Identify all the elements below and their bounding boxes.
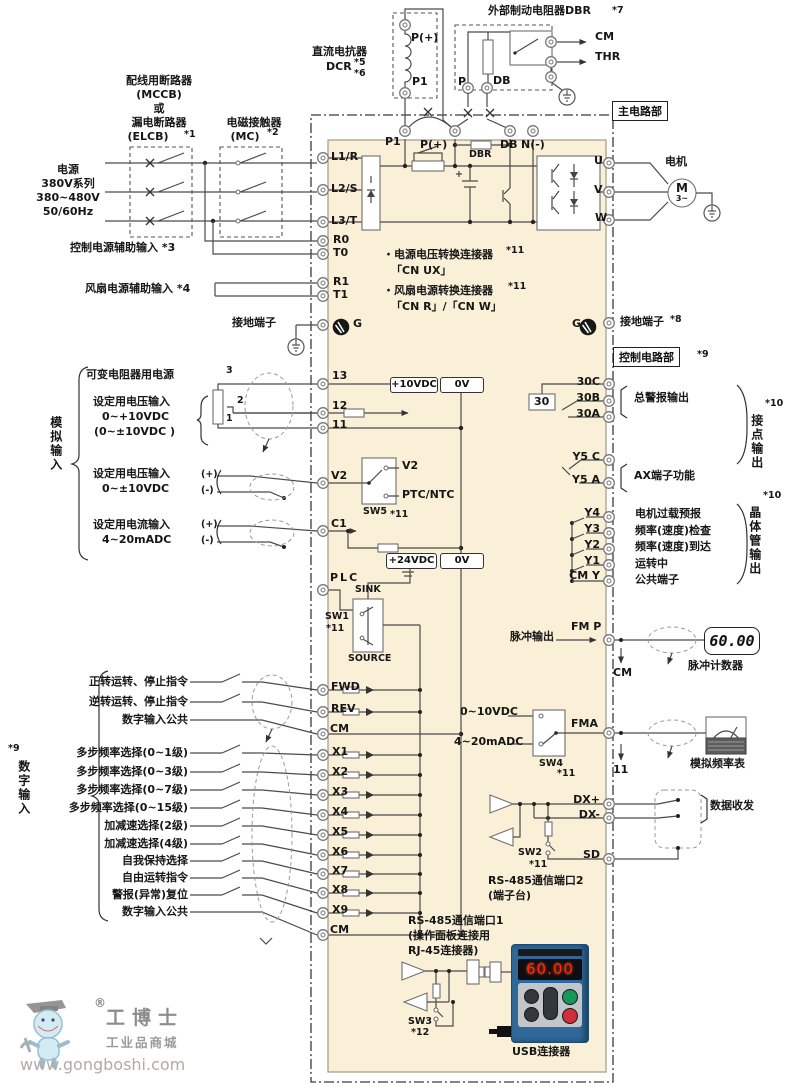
supply-0v-a: 0V (440, 377, 484, 393)
term-x7: X7 (332, 865, 348, 878)
ground-left-label: 接地端子 (232, 317, 276, 330)
v2-minus: (-) (201, 486, 214, 497)
power-source-line3: 380~480V (25, 192, 111, 205)
keypad-buttons (518, 983, 582, 1027)
fn-label-5: 公共端子 (635, 574, 679, 587)
analog-group-label: 模拟输入 (48, 416, 62, 472)
term-fma: FMA (571, 718, 598, 731)
contact-output-group: 接点输出 (749, 414, 763, 470)
term-x6: X6 (332, 846, 348, 859)
v2-plus: (+) (201, 470, 218, 481)
sw5-label: SW5 (363, 507, 387, 518)
digital-label-x7: 自我保持选择 (23, 855, 188, 868)
logo-name: 工博士 (106, 1008, 184, 1030)
supply-24vdc: +24VDC (386, 553, 437, 569)
keypad-stop-button (562, 1008, 578, 1024)
term-sd: SD (572, 849, 600, 862)
term-x3: X3 (332, 786, 348, 799)
rs485-1-label-2: (操作面板连接用 (408, 930, 490, 943)
analog-row4a: 4~20mADC (102, 534, 171, 547)
keypad-prg-button (524, 989, 539, 1004)
voltage-input-brace (197, 396, 208, 445)
aux-fan-label: 风扇电源辅助输入 *4 (85, 283, 190, 296)
aux-control-label: 控制电源辅助输入 *3 (70, 242, 175, 255)
dbr-p: P (458, 76, 466, 89)
term-30c: 30C (570, 376, 600, 389)
analog-row2a: 0~+10VDC (102, 411, 169, 424)
term-r1: R1 (333, 276, 349, 289)
supply-0v-b: 0V (440, 553, 484, 569)
term-rev: REV (331, 703, 356, 716)
c1-plus: (+) (201, 520, 218, 531)
analog-row4: 设定用电流输入 (93, 519, 170, 532)
fn-label-3: 频率(速度)到达 (635, 541, 711, 554)
term-y5c: Y5 C (568, 451, 600, 464)
fn-label-4: 运转中 (635, 558, 668, 571)
analog-group-brace (72, 367, 88, 560)
term-l2s: L2/S (331, 183, 358, 196)
term-y3: Y3 (572, 523, 600, 536)
term-11: 11 (332, 419, 347, 432)
conn-note-2: 「CN UX」 (391, 265, 452, 278)
digital-input-wiring (190, 674, 317, 944)
fma-in1: 0~10VDC (460, 706, 518, 719)
term-x9: X9 (332, 904, 348, 917)
ground-right-note: *8 (670, 315, 682, 326)
digital-label-x1: 多步频率选择(0~1级) (23, 747, 188, 760)
dcr-p1: P1 (412, 76, 428, 89)
term-n: N(-) (521, 139, 545, 152)
mc-note: *2 (267, 128, 279, 139)
term-l3t: L3/T (331, 215, 357, 228)
pulse-counter-label: 脉冲计数器 (688, 660, 743, 673)
digital-label-x4: 多步频率选择(0~15级) (23, 802, 188, 815)
term-x8: X8 (332, 884, 348, 897)
dc-reactor (393, 9, 451, 127)
conn-note-4: 「CN R」/「CN W」 (391, 301, 502, 314)
analog-row3: 设定用电压输入 (93, 468, 170, 481)
term-y5a: Y5 A (568, 474, 600, 487)
c1-minus: (-) (201, 536, 214, 547)
term-p1: P1 (385, 136, 401, 149)
term-y4: Y4 (572, 507, 600, 520)
sw2-label: SW2 (518, 848, 542, 859)
analog-row1: 可变电阻器用电源 (86, 369, 174, 382)
term-t0: T0 (333, 247, 348, 260)
term-db: DB (500, 139, 518, 152)
keypad-brand-strip (518, 949, 582, 956)
control-circuit-note: *9 (697, 350, 709, 361)
inverter-wiring-diagram: 电源 380V系列 380~480V 50/60Hz 配线用断路器 (MCCB)… (0, 0, 790, 1090)
sw5-ptc: PTC/NTC (402, 489, 454, 502)
dcr-pplus: P(+) (411, 32, 438, 45)
mccb-label-4: 漏电断路器 (103, 117, 215, 130)
power-source-line2: 380V系列 (25, 178, 111, 191)
keypad-display-value: 60.00 (526, 960, 574, 978)
usb-plug (497, 1026, 511, 1037)
rs485-2-label-1: RS-485通信端口2 (488, 875, 584, 888)
term-fmp: FM P (571, 621, 601, 634)
dcr-name: DCR (326, 61, 352, 74)
rs485-1-label-1: RS-485通信端口1 (408, 915, 504, 928)
fm-cm-label: CM (613, 667, 632, 680)
fma-ret-11: 11 (613, 764, 628, 777)
data-txrx-label: 数据收发 (710, 800, 754, 813)
sw5-v2: V2 (402, 460, 418, 473)
pot-pin2: 2 (237, 396, 244, 407)
dbr-thr: THR (595, 51, 620, 64)
digital-label-x2: 多步频率选择(0~3级) (23, 766, 188, 779)
keypad-run-button (562, 989, 578, 1005)
sw3-note: *12 (411, 1028, 429, 1039)
dbr-title: 外部制动电阻器DBR (488, 5, 591, 18)
term-v2: V2 (331, 470, 347, 483)
pot-pin1: 1 (226, 414, 233, 425)
sw1-label: SW1 (325, 612, 349, 623)
transistor-output-note: *10 (763, 491, 781, 502)
term-cm-b: CM (330, 924, 349, 937)
relay-30-coil: 30 (534, 396, 549, 409)
external-braking-resistor (455, 25, 586, 128)
supply-10vdc: +10VDC (390, 377, 438, 393)
sw2-note: *11 (529, 860, 547, 871)
analog-input-wiring (213, 373, 317, 549)
logo-url: www.gongboshi.com (20, 1056, 185, 1074)
terminals-left (318, 153, 329, 941)
term-pplus: P(+) (420, 139, 447, 152)
sw4-note: *11 (557, 769, 575, 780)
term-w: W (595, 212, 607, 225)
transistor-output-group: 晶体管输出 (747, 506, 761, 576)
term-dbr: DBR (469, 150, 491, 161)
digital-label-cm: 数字输入公共 (23, 714, 188, 727)
term-x4: X4 (332, 806, 348, 819)
keypad-display: 60.00 (518, 959, 582, 980)
mccb-label-5: (ELCB) (103, 131, 193, 144)
term-plc: PLC (330, 572, 359, 585)
conn-note-1: ・电源电压转换连接器 (383, 249, 493, 262)
analog-row3a: 0~±10VDC (102, 483, 169, 496)
conn-note-3-ref: *11 (508, 282, 526, 293)
control-circuit-section-label: 控制电路部 (613, 347, 680, 367)
mccb-label-1: 配线用断路器 (103, 75, 215, 88)
rs485-1-label-3: RJ-45连接器) (408, 945, 478, 958)
term-c1: C1 (331, 518, 347, 531)
logo-registered-mark: ® (94, 997, 106, 1011)
digital-label-cm2: 数字输入公共 (23, 906, 188, 919)
term-cm: CM (330, 723, 349, 736)
source-label: SOURCE (348, 654, 391, 665)
term-fwd: FWD (331, 681, 360, 694)
rs485-2-label-2: (端子台) (488, 890, 531, 903)
motor-phase: 3~ (668, 194, 696, 203)
sw1-note: *11 (326, 624, 344, 635)
mccb-note: *1 (184, 130, 196, 141)
digital-label-x6: 加减速选择(4级) (23, 838, 188, 851)
keypad-panel: 60.00 (511, 944, 589, 1043)
term-13: 13 (332, 370, 347, 383)
term-12: 12 (332, 400, 347, 413)
terminals-top (400, 126, 539, 137)
digital-label-rev: 逆转运转、停止指令 (23, 696, 188, 709)
analog-output-wiring (508, 710, 746, 760)
main-circuit-section-label: 主电路部 (612, 101, 668, 121)
dbr-cm: CM (595, 31, 614, 44)
power-source-line4: 50/60Hz (25, 206, 111, 219)
logo-subtitle: 工业品商城 (106, 1036, 179, 1050)
term-30b: 30B (570, 392, 600, 405)
term-y1: Y1 (572, 555, 600, 568)
pulse-counter-value: 60.00 (709, 632, 754, 650)
dbr-note: *7 (612, 6, 624, 17)
fn-label-1: 电机过载预报 (635, 508, 701, 521)
keypad-func-button (524, 1007, 539, 1022)
analog-meter-label: 模拟频率表 (690, 758, 745, 771)
term-r0: R0 (333, 234, 349, 247)
term-u: U (594, 155, 603, 168)
mccb-label-3: 或 (103, 103, 215, 116)
digital-label-x5: 加减速选择(2级) (23, 820, 188, 833)
fma-in2: 4~20mADC (454, 736, 523, 749)
term-g-left: G (353, 318, 362, 331)
keypad-updown-button (543, 987, 558, 1020)
analog-row2b: (0~±10VDC ) (94, 426, 175, 439)
term-l1r: L1/R (331, 151, 358, 164)
term-30a: 30A (570, 408, 600, 421)
term-dxm: DX- (570, 809, 600, 822)
digital-label-x9: 警报(异常)复位 (23, 889, 188, 902)
term-g-right: G (572, 318, 581, 331)
term-x2: X2 (332, 766, 348, 779)
dcr-note2: *6 (354, 69, 366, 80)
term-dxp: DX+ (570, 794, 600, 807)
conn-note-1-ref: *11 (506, 246, 524, 257)
contact-output-note: *10 (765, 399, 783, 410)
dbr-db: DB (493, 75, 511, 88)
conn-note-3: ・风扇电源转换连接器 (383, 285, 493, 298)
fn-label-2: 频率(速度)检查 (635, 525, 711, 538)
digital-label-x3: 多步频率选择(0~7级) (23, 784, 188, 797)
ground-right-label: 接地端子 (620, 316, 664, 329)
term-t1: T1 (333, 289, 348, 302)
pulse-output-label: 脉冲输出 (510, 631, 554, 644)
motor-label: 电机 (665, 156, 687, 169)
term-v: V (594, 184, 603, 197)
pot-pin3: 3 (226, 366, 233, 377)
sw5-note: *11 (390, 510, 408, 521)
digital-label-x8: 自由运转指令 (23, 872, 188, 885)
term-x1: X1 (332, 746, 348, 759)
digital-label-fwd: 正转运转、停止指令 (23, 676, 188, 689)
usb-cable (489, 1029, 497, 1034)
power-source-line1: 电源 (25, 164, 111, 177)
usb-connector-label: USB连接器 (512, 1046, 570, 1059)
ax-function-label: AX端子功能 (634, 470, 695, 483)
mccb-label-2: (MCCB) (103, 89, 215, 102)
digital-note: *9 (8, 744, 20, 755)
alarm-output-label: 总警报输出 (634, 392, 689, 405)
term-x5: X5 (332, 826, 348, 839)
analog-row2: 设定用电压输入 (93, 396, 170, 409)
term-y2: Y2 (572, 539, 600, 552)
mc-label-1: 电磁接触器 (210, 117, 298, 130)
pulse-counter-display: 60.00 (704, 627, 760, 655)
sink-label: SINK (355, 585, 381, 596)
term-cmy: CM Y (562, 570, 600, 583)
